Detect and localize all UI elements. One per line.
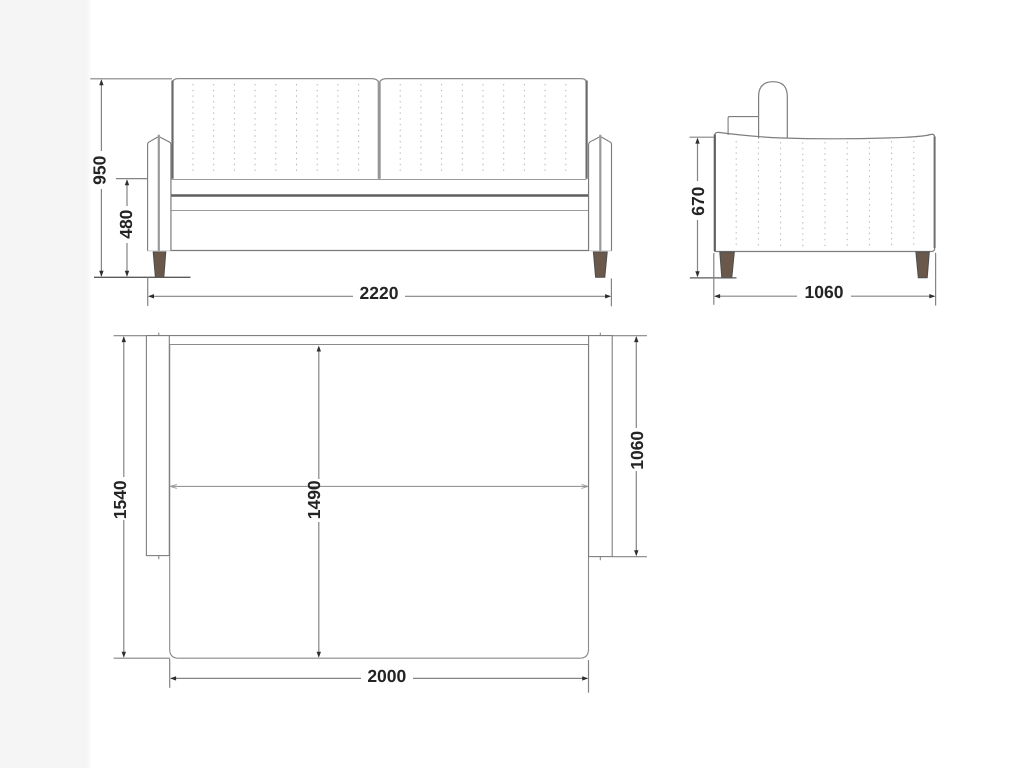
svg-text:1060: 1060 — [805, 282, 844, 302]
svg-text:950: 950 — [89, 155, 109, 184]
svg-text:2000: 2000 — [367, 666, 406, 686]
svg-text:2220: 2220 — [360, 283, 399, 303]
svg-text:1490: 1490 — [304, 480, 324, 519]
svg-text:670: 670 — [688, 186, 708, 215]
svg-text:1540: 1540 — [110, 480, 130, 519]
svg-text:480: 480 — [116, 209, 136, 238]
svg-text:1060: 1060 — [627, 431, 647, 470]
